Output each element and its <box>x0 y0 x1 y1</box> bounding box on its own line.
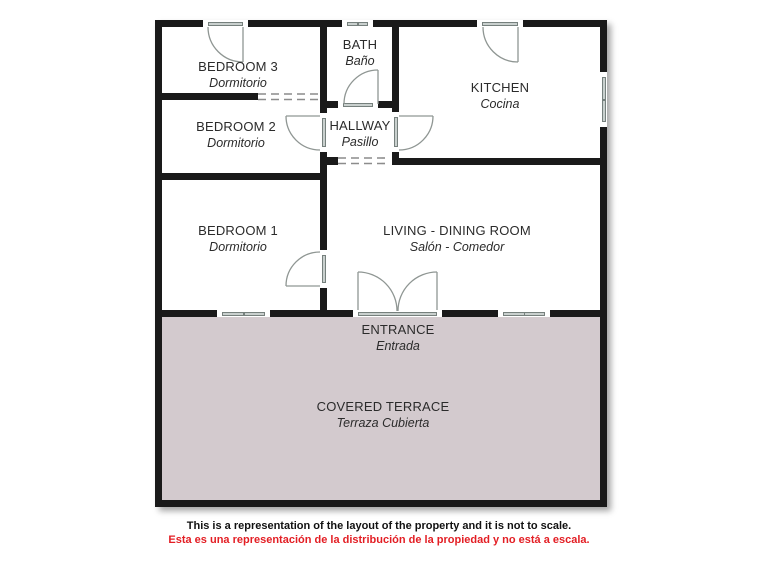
wall-bath-kitchen-upper <box>392 27 399 112</box>
hallway-kitchen-door-threshold <box>394 117 399 147</box>
wall-terrace-top-4 <box>550 310 600 317</box>
wall-outer-left <box>155 20 162 507</box>
bath-door-threshold <box>343 103 373 108</box>
room-name: HALLWAY <box>329 118 390 134</box>
living-window-divider <box>524 312 526 317</box>
disclaimer: This is a representation of the layout o… <box>0 519 758 547</box>
wall-terrace-top-3 <box>442 310 498 317</box>
room-subtitle: Dormitorio <box>198 239 278 255</box>
wall-terrace-top-2 <box>270 310 353 317</box>
room-label-bedroom3: BEDROOM 3 Dormitorio <box>198 59 278 91</box>
room-label-bedroom1: BEDROOM 1 Dormitorio <box>198 223 278 255</box>
room-name: COVERED TERRACE <box>317 399 450 415</box>
floor-plan: BEDROOM 3 Dormitorio BATH Baño KITCHEN C… <box>0 0 758 564</box>
kitchen-door-threshold <box>482 22 518 27</box>
room-subtitle: Entrada <box>361 338 434 354</box>
room-subtitle: Salón - Comedor <box>383 239 531 255</box>
room-label-entrance: ENTRANCE Entrada <box>361 322 434 354</box>
wall-bedroom2-bedroom1 <box>162 173 327 180</box>
wall-kitchen-bottom <box>392 158 600 165</box>
room-label-bath: BATH Baño <box>343 37 378 69</box>
room-subtitle: Dormitorio <box>198 75 278 91</box>
wall-outer-bottom <box>155 500 607 507</box>
room-name: LIVING - DINING ROOM <box>383 223 531 239</box>
room-name: BEDROOM 1 <box>198 223 278 239</box>
room-subtitle: Terraza Cubierta <box>317 415 450 431</box>
wall-bath-bottom-right <box>378 101 392 108</box>
room-subtitle: Cocina <box>471 96 529 112</box>
room-name: BEDROOM 3 <box>198 59 278 75</box>
wall-bedroom3-bedroom2 <box>162 93 258 100</box>
room-name: ENTRANCE <box>361 322 434 338</box>
bedroom1-window-divider <box>243 312 245 317</box>
wall-bath-bottom-left <box>327 101 338 108</box>
room-label-hallway: HALLWAY Pasillo <box>329 118 390 150</box>
room-label-terrace: COVERED TERRACE Terraza Cubierta <box>317 399 450 431</box>
bedroom2-door-threshold <box>322 118 327 147</box>
wall-spine-middle <box>320 152 327 250</box>
bath-window-divider <box>357 22 359 27</box>
wall-hallway-stub <box>327 157 338 165</box>
wall-spine-upper <box>320 27 327 113</box>
room-label-living: LIVING - DINING ROOM Salón - Comedor <box>383 223 531 255</box>
kitchen-window-divider <box>602 99 607 101</box>
room-name: BEDROOM 2 <box>196 119 276 135</box>
disclaimer-english: This is a representation of the layout o… <box>0 519 758 533</box>
room-label-kitchen: KITCHEN Cocina <box>471 80 529 112</box>
room-name: BATH <box>343 37 378 53</box>
bedroom1-door-threshold <box>322 255 327 283</box>
room-label-bedroom2: BEDROOM 2 Dormitorio <box>196 119 276 151</box>
room-subtitle: Baño <box>343 53 378 69</box>
entrance-door-threshold <box>358 312 437 317</box>
room-name: KITCHEN <box>471 80 529 96</box>
room-subtitle: Dormitorio <box>196 135 276 151</box>
wall-terrace-top-1 <box>162 310 217 317</box>
room-subtitle: Pasillo <box>329 134 390 150</box>
bedroom3-door-threshold <box>208 22 243 27</box>
disclaimer-spanish: Esta es una representación de la distrib… <box>0 533 758 547</box>
